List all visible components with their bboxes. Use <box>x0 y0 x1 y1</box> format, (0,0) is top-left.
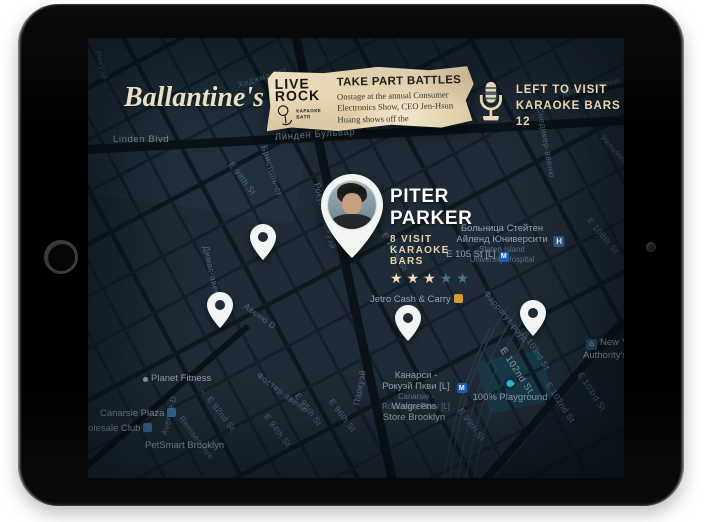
event-banner[interactable]: LIVE ROCK КАРАОКЕ БАТЛ TAKE PART BATTLES <box>266 67 474 131</box>
microphone-icon <box>476 78 506 126</box>
map-pin[interactable] <box>250 224 276 260</box>
player-avatar <box>328 181 376 229</box>
star-icon: ★ <box>407 271 420 285</box>
banner-title: TAKE PART BATTLES <box>337 74 466 89</box>
tablet-device: Linden BlvdЛинден БульварРокуэйХеджман-с… <box>0 0 712 522</box>
star-icon: ★ <box>456 271 469 285</box>
star-icon: ★ <box>440 271 453 285</box>
live-rock-logo: LIVE ROCK КАРАОКЕ БАТЛ <box>275 77 332 125</box>
map-pin[interactable] <box>207 292 233 328</box>
player-pin <box>321 174 383 258</box>
counter-line2: KARAOKE BARS 12 <box>516 98 624 130</box>
player-rating: ★★★★★ <box>390 271 472 285</box>
live-rock-logo-sub: КАРАОКЕ БАТЛ <box>296 108 324 120</box>
map-pin[interactable] <box>395 305 421 341</box>
camera-dot <box>646 242 656 252</box>
player-name: PITER PARKER <box>390 186 472 230</box>
banner-body: Onstage at the annual Consumer Electroni… <box>337 89 467 126</box>
map-pin[interactable] <box>520 300 546 336</box>
player-visits-label: 8 VISIT KARAOKE BARS <box>390 234 472 267</box>
live-rock-logo-line2: ROCK <box>275 89 331 102</box>
banner-paper: LIVE ROCK КАРАОКЕ БАТЛ TAKE PART BATTLES <box>265 65 474 133</box>
home-button[interactable] <box>44 240 78 274</box>
star-icon: ★ <box>423 271 436 285</box>
counter-line1: LEFT TO VISIT <box>516 82 624 98</box>
ballantines-logo: Ballantine's <box>124 82 264 114</box>
karaoke-counter: LEFT TO VISIT KARAOKE BARS 12 <box>476 78 624 130</box>
star-icon: ★ <box>390 271 403 285</box>
screen: Linden BlvdЛинден БульварРокуэйХеджман-с… <box>88 38 624 478</box>
mic-doodle-icon <box>273 101 298 131</box>
